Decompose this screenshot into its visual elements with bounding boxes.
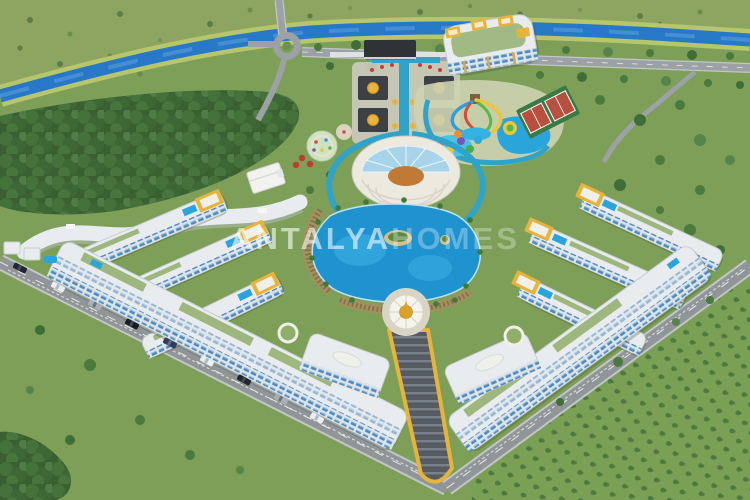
villa-pool xyxy=(44,256,57,263)
render-scene xyxy=(0,0,750,500)
amphitheater xyxy=(352,136,460,208)
aerial-render-image: ANTALYAHOMES xyxy=(0,0,750,500)
round-pergola xyxy=(279,324,297,342)
round-pergola xyxy=(505,327,523,345)
gazebo xyxy=(382,288,430,336)
gold-dome xyxy=(400,306,413,319)
boulevard-canal xyxy=(399,62,409,138)
stage xyxy=(388,166,424,186)
bridge-road xyxy=(279,0,283,38)
